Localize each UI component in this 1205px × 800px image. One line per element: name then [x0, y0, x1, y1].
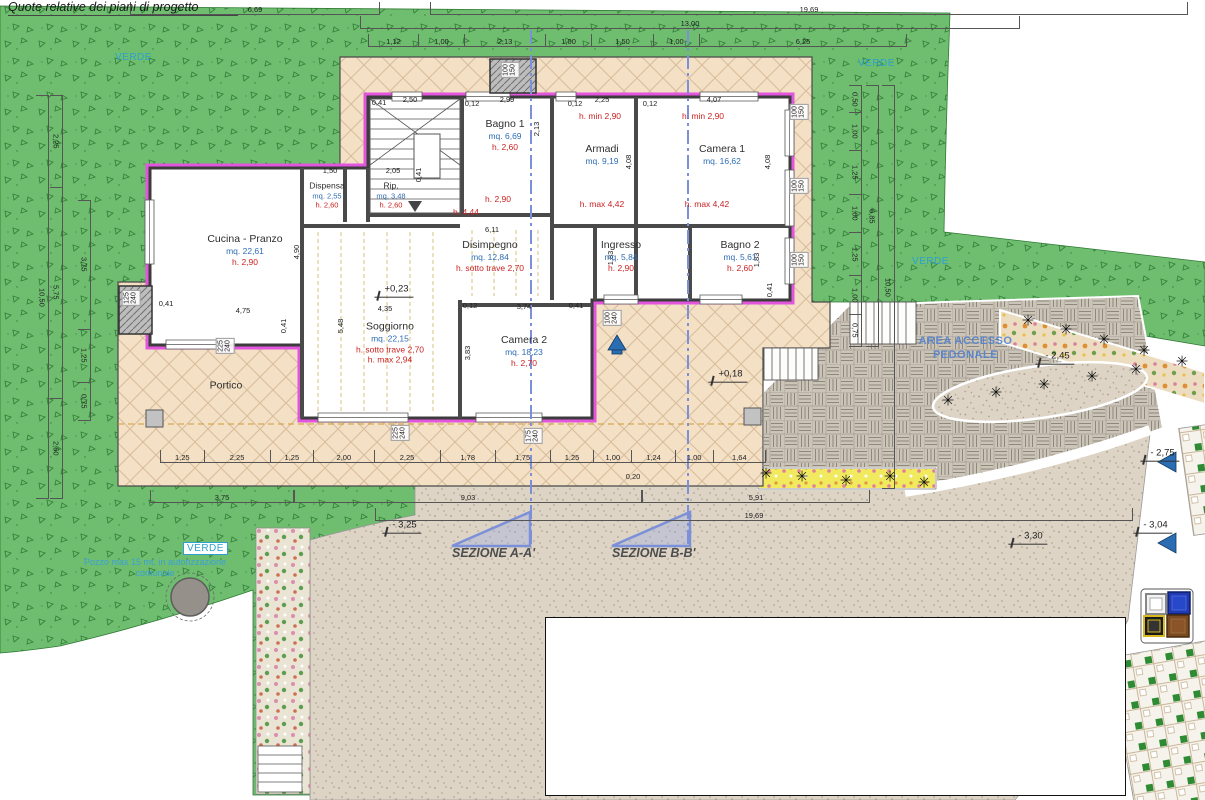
portico-pillar	[744, 408, 761, 425]
verde-label: VERDE	[912, 256, 949, 267]
waste-bins	[1141, 589, 1193, 643]
access-arrow-icon	[1158, 533, 1176, 553]
verde-label: VERDE	[115, 52, 152, 63]
small-steps	[258, 746, 302, 792]
floor-plan-drawing: 6,69 19,69 13,00 1,121,002,131,001,501,0…	[0, 0, 1205, 800]
portico-pillar	[146, 410, 163, 427]
exterior-stairs-south	[764, 348, 818, 380]
pedestrian-access-label: AREA ACCESSO PEDONALE	[903, 334, 1028, 363]
section-line-aa	[530, 30, 532, 546]
flower-strip	[758, 468, 936, 489]
section-label-aa: SEZIONE A-A'	[452, 546, 535, 560]
grass-grid-strip	[1179, 425, 1205, 536]
section-label-bb: SEZIONE B-B'	[612, 546, 696, 560]
verde-label: VERDE	[858, 58, 895, 69]
verde-label: VERDE	[183, 542, 228, 555]
drawing-title: Quote relative dei piani di progetto	[8, 0, 238, 16]
blank-panel	[545, 617, 1126, 796]
access-arrow-icon	[1158, 452, 1176, 472]
interior-staircase	[370, 99, 460, 213]
section-line-bb	[687, 30, 689, 546]
well-note: Pozzo max 15 mt. in autorizzazione comun…	[65, 557, 245, 579]
chimney-block-left	[119, 286, 152, 334]
